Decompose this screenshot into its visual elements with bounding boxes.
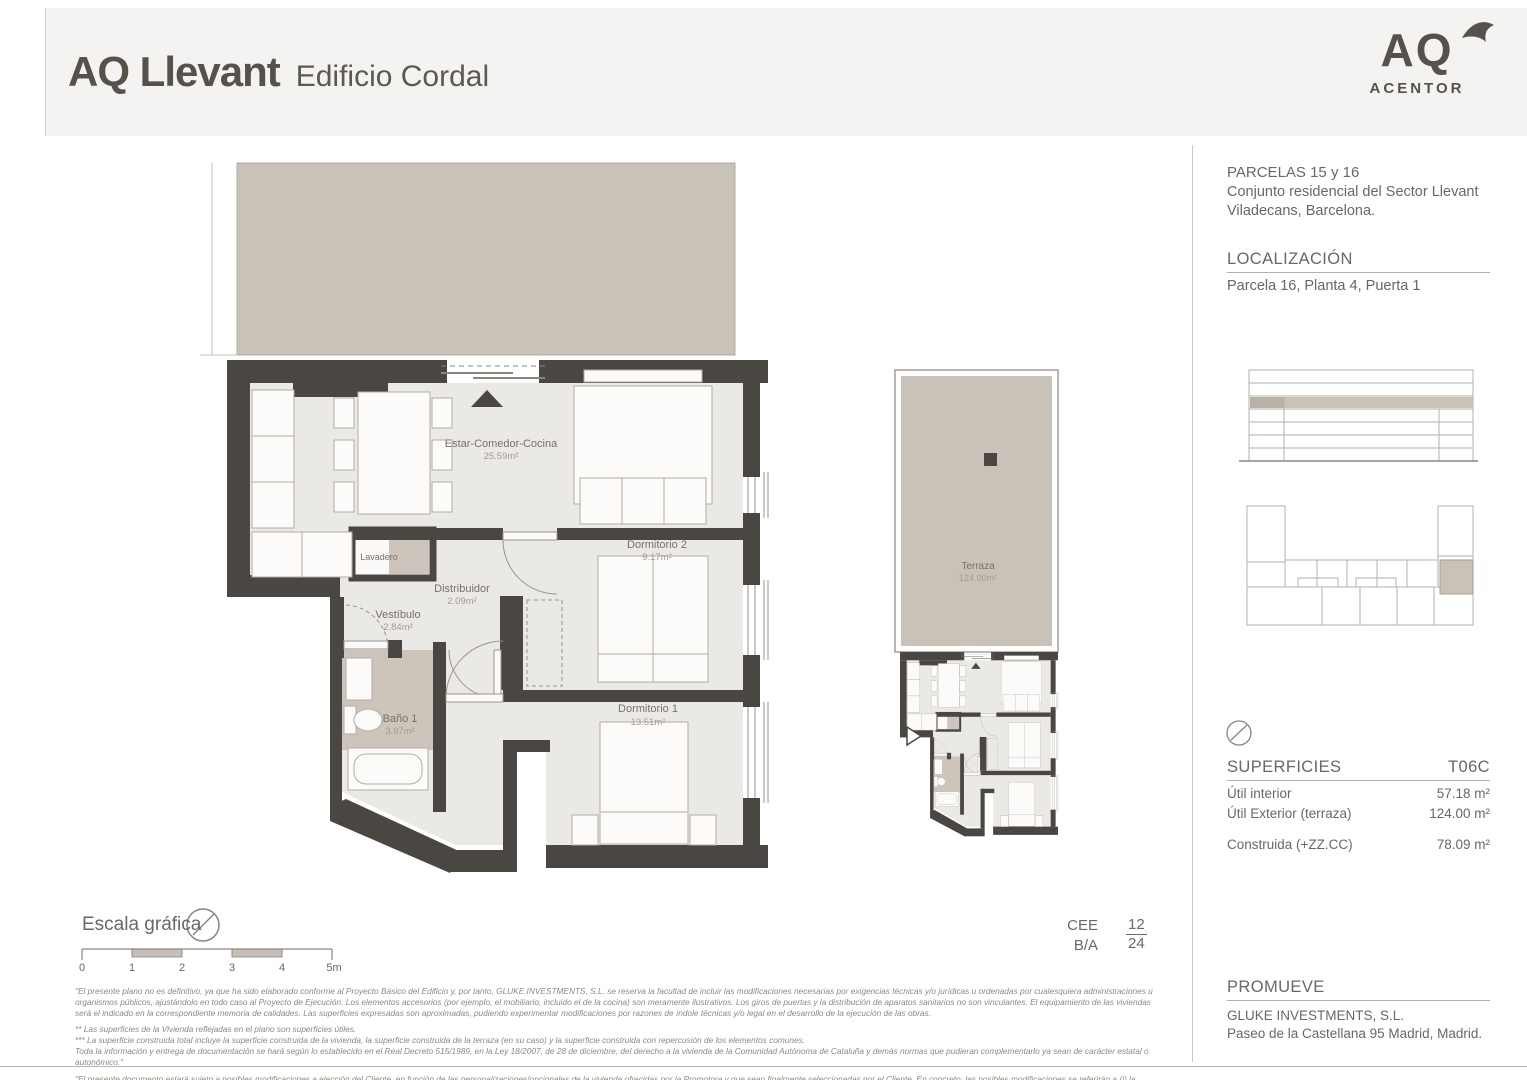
project-line2: Viladecans, Barcelona. — [1227, 202, 1490, 221]
terraza-plan — [895, 370, 1058, 652]
room-area-terraza: 124.00m² — [959, 573, 997, 583]
sink — [346, 658, 372, 700]
location-block: LOCALIZACIÓN Parcela 16, Planta 4, Puert… — [1227, 250, 1490, 294]
disclaimer-p3: "El presente documento estará sujeto a p… — [75, 1074, 1167, 1080]
promoter-address: Paseo de la Castellana 95 Madrid, Madrid… — [1227, 1025, 1490, 1043]
energy-rating: B/A — [1046, 936, 1098, 956]
room-area-bano1: 3.97m² — [385, 726, 415, 737]
surface-value: 78.09 m² — [1437, 837, 1490, 852]
room-label-vestibulo: Vestíbulo — [375, 609, 420, 621]
scale-tick: 1 — [115, 962, 149, 974]
location-value: Parcela 16, Planta 4, Puerta 1 — [1227, 278, 1490, 294]
disclaimer-p2c: Toda la información y entrega de documen… — [75, 1046, 1167, 1068]
surface-label: Construida (+ZZ.CC) — [1227, 837, 1353, 852]
disclaimer-p1: "El presente plano no es definitivo, ya … — [75, 986, 1167, 1018]
highlighted-unit — [1440, 560, 1473, 594]
project-info: PARCELAS 15 y 16 Conjunto residencial de… — [1227, 163, 1490, 221]
promoter-block: PROMUEVE GLUKE INVESTMENTS, S.L. Paseo d… — [1227, 978, 1490, 1043]
terrace-main — [200, 163, 735, 355]
building-elevation — [1239, 370, 1478, 461]
surfaces-block: SUPERFICIES T06C Útil interior 57.18 m² … — [1227, 758, 1490, 852]
room-area-distribuidor: 2.09m² — [447, 596, 477, 607]
promoter-name: GLUKE INVESTMENTS, S.L. — [1227, 1007, 1490, 1025]
energy-denominator: 24 — [1126, 935, 1147, 953]
surface-label: Útil Exterior (terraza) — [1227, 806, 1352, 821]
parcels-title: PARCELAS 15 y 16 — [1227, 163, 1490, 182]
surfaces-heading: SUPERFICIES — [1227, 758, 1341, 777]
room-area-estar: 25.59m² — [484, 451, 519, 462]
apartment-plan — [227, 360, 768, 873]
room-label-dorm1: Dormitorio 1 — [618, 703, 678, 715]
plan-canvas: Estar-Comedor-Cocina 25.59m² Dormitorio … — [0, 0, 1527, 1080]
surface-row: Útil Exterior (terraza) 124.00 m² — [1227, 806, 1490, 821]
site-plan — [1247, 506, 1473, 625]
scale-tick: 4 — [265, 962, 299, 974]
surface-row: Construida (+ZZ.CC) 78.09 m² — [1227, 837, 1490, 852]
room-label-bano1: Baño 1 — [383, 713, 418, 725]
scale-label: Escala gráfica — [82, 914, 201, 936]
room-label-estar: Estar-Comedor-Cocina — [445, 438, 558, 450]
energy-certificate: CEE B/A 12 24 — [1046, 916, 1147, 956]
promoter-heading: PROMUEVE — [1227, 978, 1325, 997]
room-area-dorm1: 13.51m² — [631, 717, 666, 728]
mini-plan — [900, 652, 1058, 837]
room-label-lavadero: Lavadero — [360, 552, 398, 562]
room-label-distribuidor: Distribuidor — [434, 583, 490, 595]
room-area-dorm2: 9.17m² — [642, 552, 672, 563]
scale-tick: 2 — [165, 962, 199, 974]
plan-sheet: AQ Llevant Edificio Cordal AQ ACENTOR — [0, 0, 1527, 1080]
dining-table — [358, 392, 430, 514]
surface-row: Útil interior 57.18 m² — [1227, 786, 1490, 801]
energy-numerator: 12 — [1126, 916, 1147, 935]
sliding-door — [441, 366, 545, 378]
scale-tick: 5m — [317, 962, 351, 974]
disclaimer-p2a: ** Las superficies de la Vivienda reflej… — [75, 1024, 1167, 1035]
bed-dorm1 — [600, 722, 688, 844]
surface-value: 57.18 m² — [1437, 786, 1490, 801]
sidebar-divider — [1192, 145, 1193, 1062]
energy-cert-label: CEE — [1046, 916, 1098, 936]
surface-label: Útil interior — [1227, 786, 1292, 801]
disclaimer-p2b: *** La superficie construida total inclu… — [75, 1035, 1167, 1046]
north-indicator-small-icon — [1227, 721, 1251, 745]
room-area-vestibulo: 2.84m² — [383, 622, 413, 633]
footer-rule — [0, 1066, 1527, 1067]
scale-bar — [82, 949, 332, 960]
scale-tick: 0 — [65, 962, 99, 974]
project-line1: Conjunto residencial del Sector Llevant — [1227, 183, 1490, 202]
location-heading: LOCALIZACIÓN — [1227, 250, 1353, 269]
sofa — [580, 478, 706, 524]
room-label-dorm2: Dormitorio 2 — [627, 539, 687, 551]
room-label-terraza: Terraza — [961, 561, 995, 572]
scale-tick: 3 — [215, 962, 249, 974]
surface-value: 124.00 m² — [1429, 806, 1490, 821]
unit-type-code: T06C — [1448, 758, 1490, 777]
